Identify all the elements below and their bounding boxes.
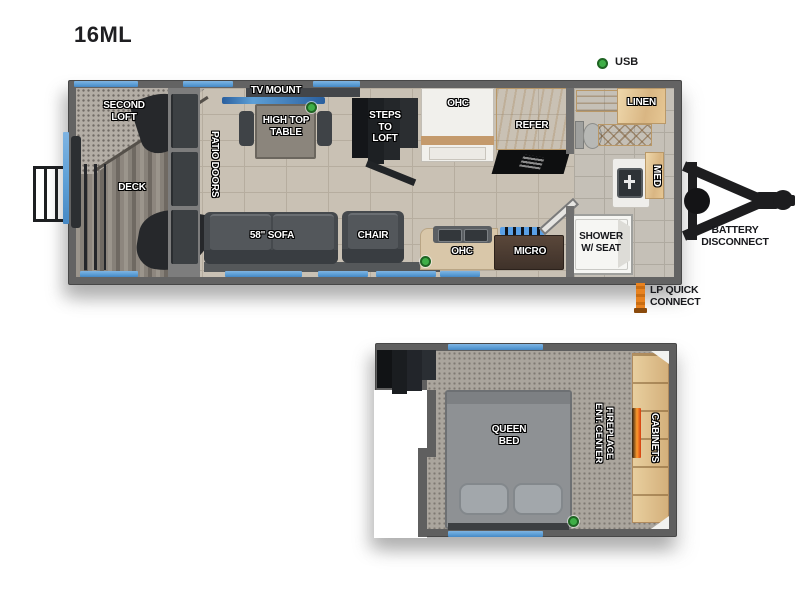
patio-door-panel (171, 152, 198, 206)
loft-steps (368, 98, 384, 164)
loft-stairs (392, 350, 407, 394)
bath-wall-lower (566, 206, 574, 277)
queen-bed (445, 390, 572, 529)
patio-door-panel (171, 210, 198, 264)
window-bottom (376, 271, 436, 277)
pillow (513, 483, 563, 515)
stool (317, 111, 332, 146)
loft-steps (352, 98, 368, 158)
window-loft-bottom (448, 531, 543, 537)
pillow (459, 483, 509, 515)
stool (239, 111, 254, 146)
cabinet-shelf (421, 136, 494, 145)
fireplace (632, 408, 641, 458)
loft-stairs (422, 350, 436, 380)
kitchen-sink (433, 226, 492, 243)
loft-stairs (407, 350, 422, 391)
sofa (204, 212, 338, 264)
linen-cabinet (617, 88, 666, 124)
loft-steps (400, 98, 418, 148)
window-left (63, 132, 69, 224)
deck-tv-panel (71, 136, 81, 228)
armchair (342, 211, 404, 263)
microwave (494, 235, 564, 270)
bath-wall-upper (566, 88, 574, 154)
usb-legend-label: USB (615, 56, 638, 69)
bath-sink (617, 168, 643, 198)
shower (570, 214, 633, 275)
window-bottom (440, 271, 480, 277)
page-title: 16ML (74, 24, 132, 46)
bath-counter (576, 90, 618, 112)
medicine-cabinet (645, 152, 664, 199)
high-top-table (255, 104, 316, 159)
lp-quick-connect-label: LP QUICK CONNECT (650, 284, 712, 308)
refrigerator (496, 88, 567, 150)
loft-wall (427, 390, 436, 456)
shower-seat (618, 219, 630, 268)
usb-legend-icon (597, 58, 608, 69)
lp-connector (636, 283, 645, 310)
window-bottom (225, 271, 302, 277)
window-loft-top (448, 344, 543, 350)
window-bottom (318, 271, 368, 277)
bath-cabinet (598, 124, 652, 146)
trailer-hitch (678, 146, 796, 256)
bed-base (448, 523, 569, 530)
deck-fence (84, 164, 106, 270)
window-top (183, 81, 233, 87)
cabinet-drawer (429, 147, 486, 160)
window-top (313, 81, 360, 87)
lp-connector-cap (634, 308, 647, 313)
window-bottom (80, 271, 138, 277)
usb-indicator-icon (568, 516, 579, 527)
floorplan-page: 16ML USB (0, 0, 800, 600)
usb-indicator-icon (306, 102, 317, 113)
range (492, 150, 571, 174)
faucet-icon (624, 180, 635, 183)
patio-door-panel (171, 94, 198, 148)
window-top (74, 81, 138, 87)
loft-wall (418, 455, 427, 537)
loft-steps (384, 98, 400, 160)
loft-stairs (377, 350, 392, 388)
grill-icon (519, 155, 545, 170)
tv-shelf (246, 88, 360, 97)
usb-indicator-icon (420, 256, 431, 267)
